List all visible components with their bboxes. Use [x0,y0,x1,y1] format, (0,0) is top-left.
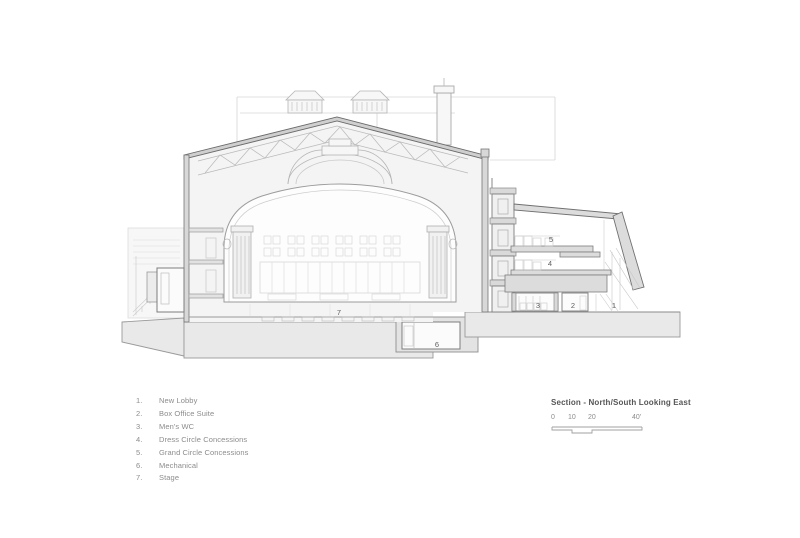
legend-item-label: Mechanical [159,460,396,473]
legend-item: 5. Grand Circle Concessions [136,447,396,460]
auditorium-interior [224,184,456,302]
scale-label-10: 10 [568,414,576,421]
room-label-4: 4 [548,259,552,268]
roof-vent-cupolas [286,91,389,113]
legend-item-number: 7. [136,472,159,485]
legend-item: 4. Dress Circle Concessions [136,434,396,447]
scale-labels: 0 10 20 40' [551,414,751,423]
legend-item: 1. New Lobby [136,395,396,408]
room-label-3: 3 [536,301,540,310]
drawing-sheet: 1 2 3 4 5 6 7 1. New Lobby 2. Box Office… [0,0,800,533]
legend-item: 2. Box Office Suite [136,408,396,421]
scale-label-0: 0 [551,414,555,421]
legend-item-number: 5. [136,447,159,460]
room-label-5: 5 [549,235,553,244]
scale-bar: 0 10 20 40' [551,414,751,436]
scale-bar-graphic [551,426,647,434]
legend-item-number: 6. [136,460,159,473]
legend-item-number: 4. [136,434,159,447]
legend: 1. New Lobby 2. Box Office Suite 3. Men'… [136,395,396,485]
mechanical-room [402,322,460,349]
scale-label-40: 40' [632,414,641,421]
room-label-7: 7 [337,308,341,317]
room-label-1: 1 [612,301,616,310]
legend-item: 7. Stage [136,472,396,485]
chimney [434,78,454,145]
legend-item-label: Stage [159,472,396,485]
legend-item: 3. Men's WC [136,421,396,434]
legend-item: 6. Mechanical [136,460,396,473]
legend-item-number: 3. [136,421,159,434]
room-label-6: 6 [435,340,439,349]
lobby-annex [505,204,644,311]
legend-item-label: Dress Circle Concessions [159,434,396,447]
legend-item-label: Box Office Suite [159,408,396,421]
legend-item-label: New Lobby [159,395,396,408]
legend-item-number: 2. [136,408,159,421]
section-drawing: 1 2 3 4 5 6 7 [0,0,800,533]
legend-item-label: Grand Circle Concessions [159,447,396,460]
scale-label-20: 20 [588,414,596,421]
legend-item-number: 1. [136,395,159,408]
sheet-title: Section - North/South Looking East [551,398,751,407]
legend-item-label: Men's WC [159,421,396,434]
title-block: Section - North/South Looking East 0 10 … [551,398,751,436]
room-label-2: 2 [571,301,575,310]
